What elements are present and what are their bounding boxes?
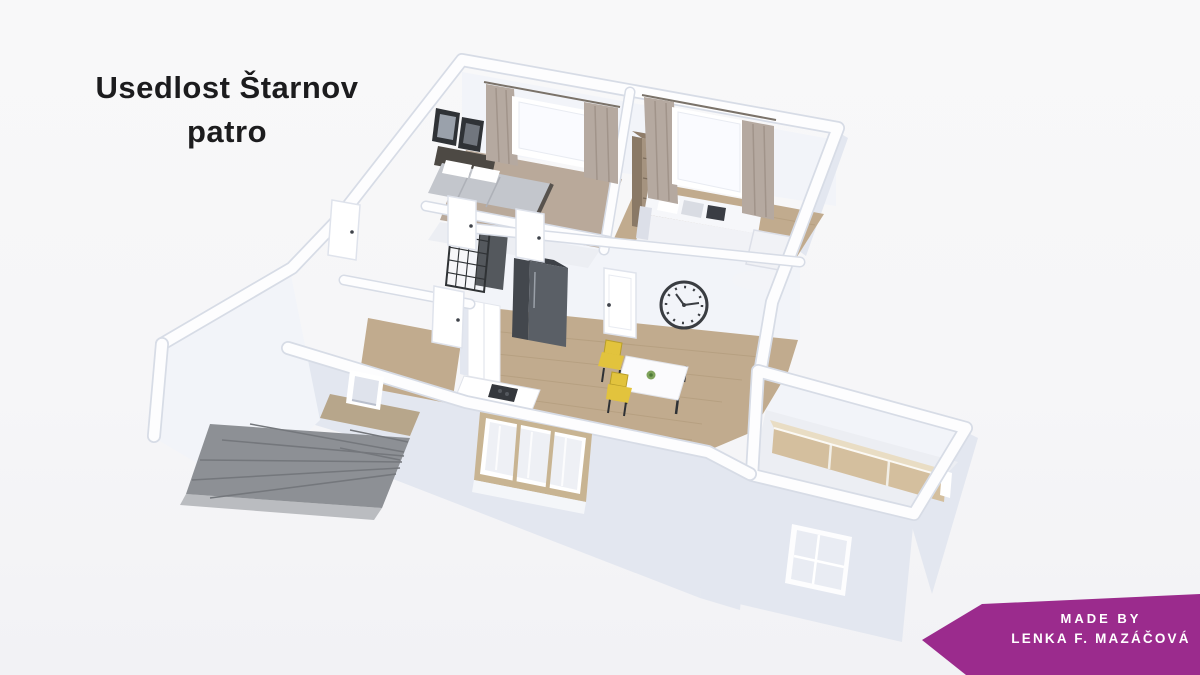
door-hall-2: [516, 209, 544, 262]
door-west-wall: [328, 200, 360, 260]
credit-line-2: LENKA F. MAZÁČOVÁ: [1002, 631, 1200, 646]
small-wall-window: [346, 370, 384, 410]
page: Usedlost Štarnov patro: [0, 0, 1200, 675]
door-hall-1: [448, 196, 476, 250]
kitchen-cabinets: [460, 298, 500, 382]
floor-plan-render: [0, 0, 1200, 675]
door-kitchen: [604, 268, 636, 338]
door-stair-hall: [432, 286, 464, 348]
fridge: [512, 253, 568, 347]
credit-line-1: MADE BY: [1002, 611, 1200, 626]
